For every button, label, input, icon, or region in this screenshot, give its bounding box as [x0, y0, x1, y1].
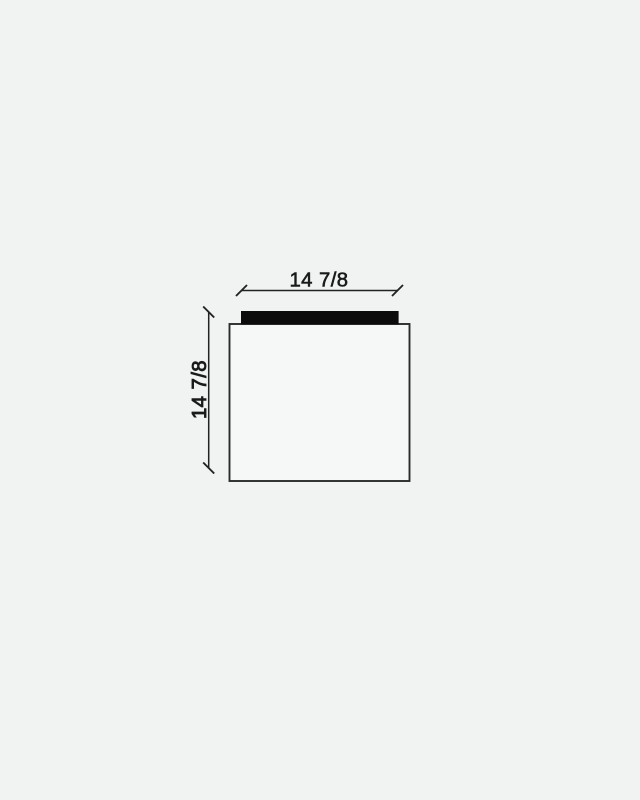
svg-text:14 7/8: 14 7/8: [289, 270, 348, 292]
svg-text:14 7/8: 14 7/8: [189, 360, 211, 419]
